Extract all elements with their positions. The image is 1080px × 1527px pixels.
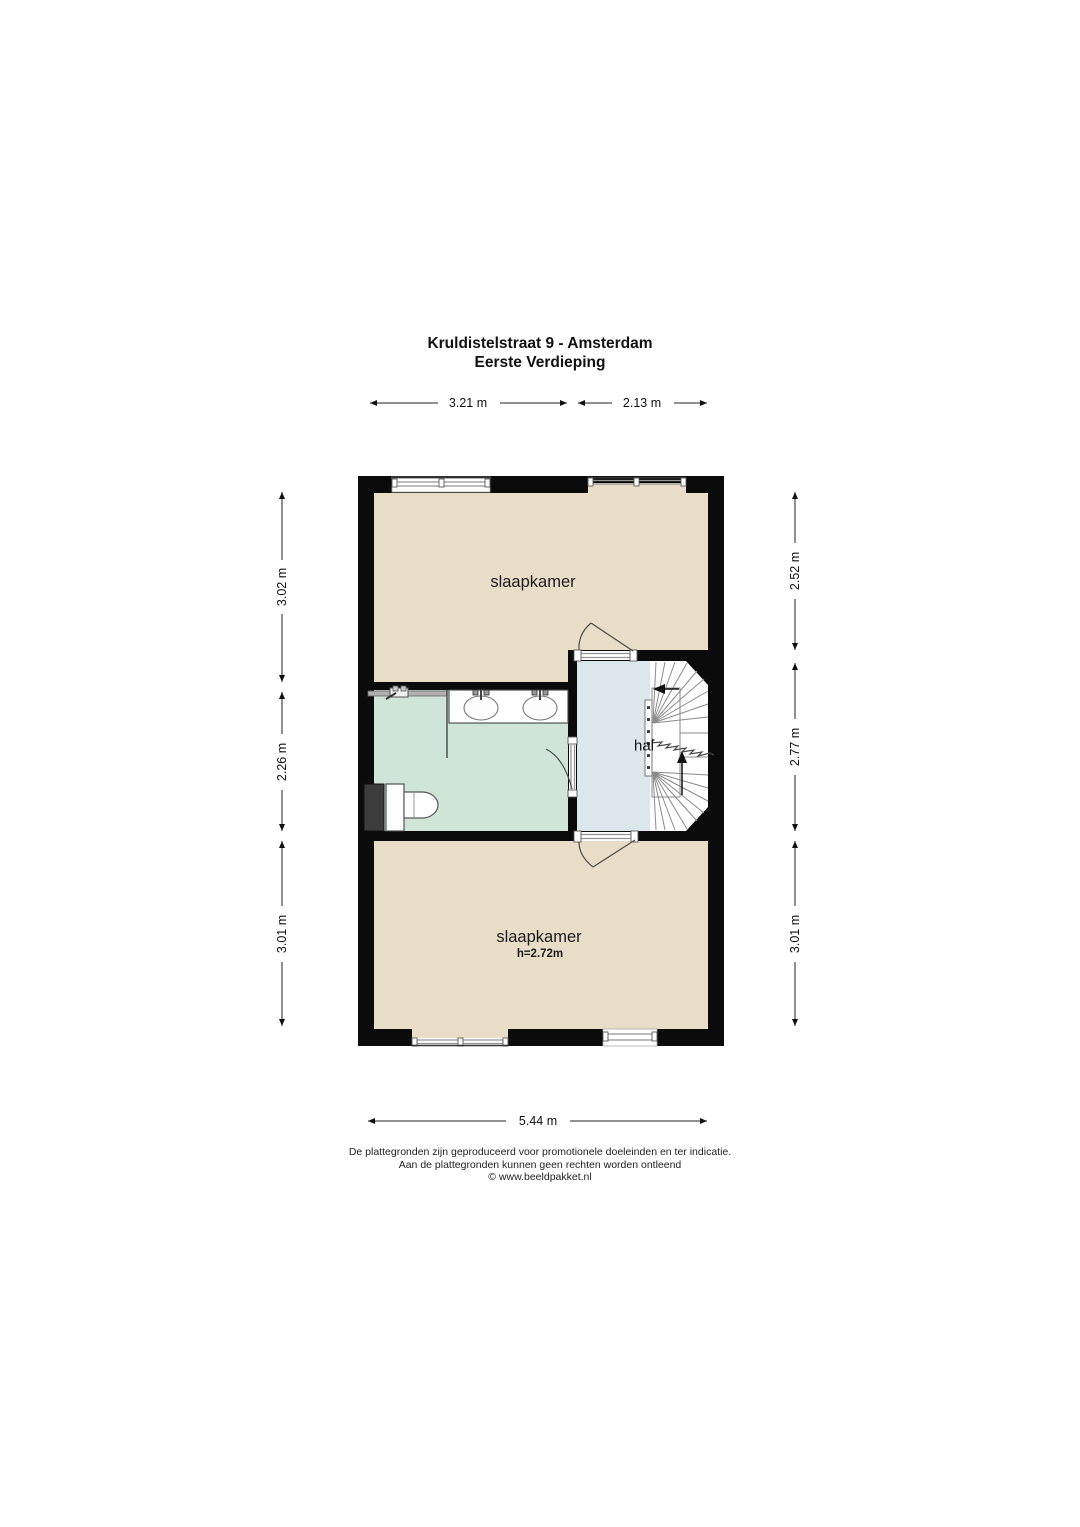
floor-plan: 3.21 m 2.13 m 3.02 m 2.26 m 3.01 m 2.52 … [0,0,1080,1527]
dim-right-1: 2.52 m [788,552,802,590]
bedroom-top-label: slaapkamer [490,573,576,591]
floorplan-page: Kruldistelstraat 9 - Amsterdam Eerste Ve… [0,0,1080,1527]
dim-top-left: 3.21 m [449,396,487,410]
disclaimer-line-1: De plattegronden zijn geproduceerd voor … [0,1146,1080,1159]
disclaimer-line-2: Aan de plattegronden kunnen geen rechten… [0,1159,1080,1172]
dim-top-right: 2.13 m [623,396,661,410]
dim-right-2: 2.77 m [788,728,802,766]
dim-bottom: 5.44 m [519,1114,557,1128]
wall-hall-bottom [358,831,724,841]
toilet-bowl [404,792,438,818]
hall-label: hal [634,738,654,755]
dim-right-3: 3.01 m [788,915,802,953]
window-bottom-right [603,1029,657,1046]
dim-left-1: 3.02 m [275,568,289,606]
bedroom-bottom-height-label: h=2.72m [517,948,563,960]
dim-left-3: 3.01 m [275,915,289,953]
disclaimer: De plattegronden zijn geproduceerd voor … [0,1146,1080,1184]
copyright-line: © www.beeldpakket.nl [0,1171,1080,1184]
window-top-right [588,478,686,493]
duct [364,784,384,831]
vanity [449,690,568,723]
bedroom-bottom-label: slaapkamer [496,928,582,946]
dim-left-2: 2.26 m [275,743,289,781]
window-bottom-left [412,1029,508,1046]
window-top-left [392,477,490,492]
toilet-cistern [386,784,404,831]
